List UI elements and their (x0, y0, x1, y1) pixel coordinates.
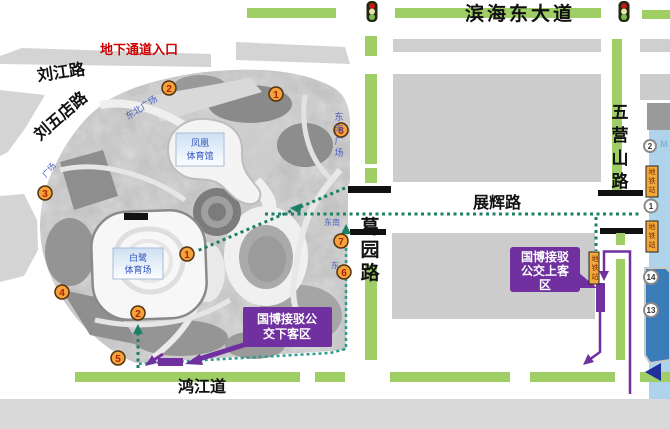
svg-text:区: 区 (539, 278, 551, 292)
svg-text:白鹭: 白鹭 (129, 252, 147, 263)
svg-text:园: 园 (360, 239, 379, 261)
svg-text:体育馆: 体育馆 (186, 150, 213, 161)
svg-text:6: 6 (341, 268, 347, 279)
svg-text:营: 营 (612, 125, 629, 145)
svg-text:地下通道入口: 地下通道入口 (100, 42, 178, 57)
svg-text:5: 5 (115, 354, 121, 365)
svg-text:鸿江道: 鸿江道 (178, 377, 226, 396)
svg-text:东南: 东南 (324, 217, 340, 227)
svg-text:站: 站 (649, 185, 656, 194)
svg-text:滨海东大道: 滨海东大道 (465, 2, 575, 25)
svg-text:场: 场 (334, 148, 343, 158)
svg-text:国博接驳公: 国博接驳公 (257, 311, 317, 326)
svg-text:交下客区: 交下客区 (263, 326, 311, 341)
svg-text:地: 地 (592, 254, 599, 263)
svg-text:国博接驳: 国博接驳 (521, 249, 570, 264)
svg-text:站: 站 (649, 240, 656, 249)
svg-text:1: 1 (273, 90, 279, 101)
svg-text:站: 站 (592, 272, 599, 281)
svg-text:凤凰: 凤凰 (191, 138, 209, 148)
svg-text:7: 7 (338, 237, 344, 248)
svg-text:路: 路 (360, 261, 380, 284)
svg-text:五: 五 (612, 103, 629, 122)
svg-text:东: 东 (334, 111, 343, 122)
svg-text:1: 1 (184, 250, 190, 261)
svg-text:铁: 铁 (649, 176, 656, 185)
svg-text:13: 13 (647, 306, 656, 315)
svg-text:2: 2 (135, 309, 141, 320)
svg-text:14: 14 (647, 273, 656, 282)
svg-text:展辉路: 展辉路 (473, 193, 522, 212)
svg-text:路: 路 (612, 171, 630, 191)
svg-text:铁: 铁 (649, 231, 656, 240)
svg-text:地: 地 (649, 167, 656, 176)
svg-text:地: 地 (649, 222, 656, 231)
svg-text:公交上客: 公交上客 (521, 263, 570, 278)
svg-text:南: 南 (334, 123, 343, 134)
svg-text:2: 2 (166, 84, 172, 95)
svg-text:1: 1 (649, 202, 654, 211)
svg-text:东: 东 (331, 260, 339, 270)
svg-text:3: 3 (42, 189, 48, 200)
svg-text:山: 山 (612, 149, 629, 168)
svg-text:4: 4 (59, 288, 65, 299)
svg-text:体育场: 体育场 (124, 264, 151, 275)
svg-text:2: 2 (648, 142, 653, 151)
svg-text:M: M (660, 139, 668, 149)
svg-text:铁: 铁 (592, 263, 599, 272)
svg-text:广: 广 (334, 135, 343, 146)
